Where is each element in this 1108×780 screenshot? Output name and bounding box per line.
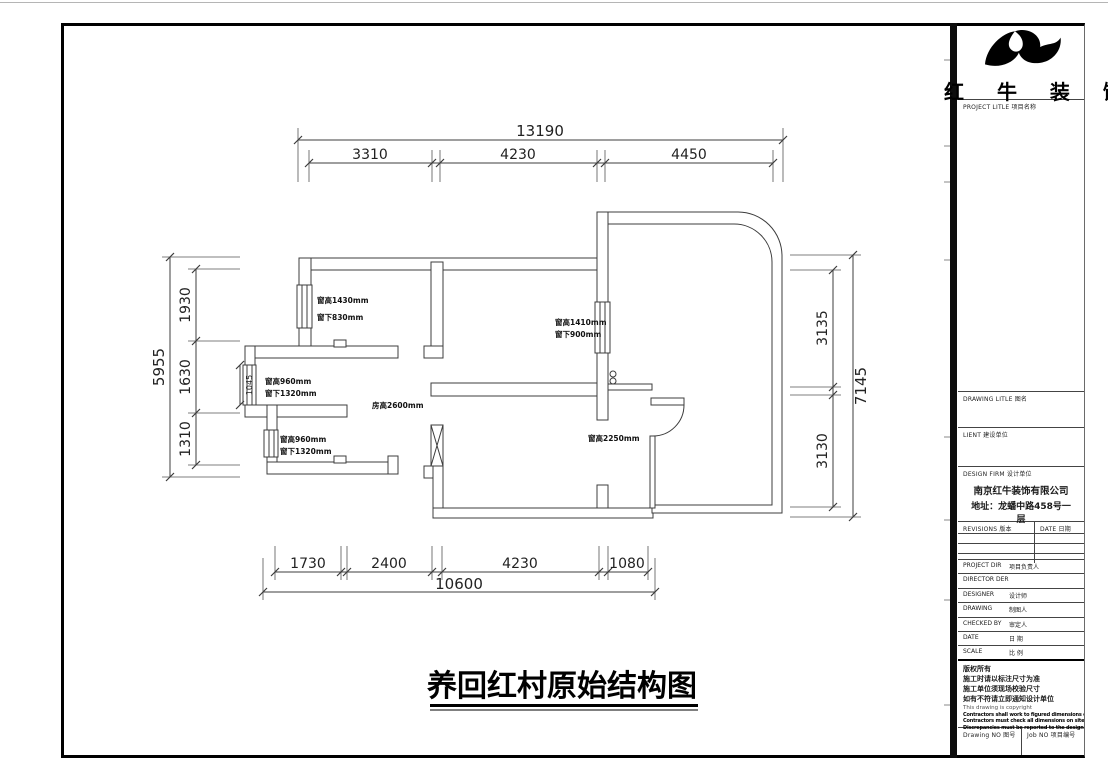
- row-label-zh: 审定人: [1009, 618, 1084, 629]
- row-label-en: DRAWING: [958, 603, 1009, 612]
- dim-bottom-s2: 2400: [371, 556, 407, 572]
- dimension-lines: [170, 140, 853, 592]
- job-no-label: Job NO 项目编号: [1022, 728, 1084, 755]
- dim-right-s2: 3130: [815, 433, 831, 469]
- ann-window-1430-sill: 窗下830mm: [317, 312, 363, 322]
- ann-window-2250: 窗高2250mm: [588, 433, 640, 443]
- copyright-en-1: This drawing is copyright: [963, 705, 1084, 712]
- plan-title-group: 养回红村原始结构图: [427, 669, 698, 710]
- row-label-zh: 设计师: [1009, 589, 1084, 600]
- floor-plan: [162, 128, 861, 600]
- ann-window-960a-h: 窗高960mm: [265, 376, 311, 386]
- wall-bottom-left: [267, 462, 398, 474]
- wall-bay-middle: [245, 405, 347, 417]
- ann-window-1410-h: 窗高1410mm: [555, 317, 607, 327]
- date-col-label: DATE 日期: [1035, 522, 1084, 533]
- project-title-label: PROJECT LITLE 项目名称: [958, 100, 1084, 111]
- project-title-section: PROJECT LITLE 项目名称: [958, 100, 1084, 392]
- door-swing-arc: [653, 405, 684, 436]
- wall-center-vertical: [431, 262, 443, 346]
- copyright-zh-3: 施工单位须现场校验尺寸: [963, 684, 1084, 694]
- dim-top-s2: 4230: [500, 147, 536, 163]
- row-label-en: DATE: [958, 632, 1009, 641]
- ann-window-1430-h: 窗高1430mm: [317, 295, 369, 305]
- dim-left-s3: 1310: [178, 421, 194, 457]
- copyright-en-3: Contractors must check all dimensions on…: [963, 718, 1084, 725]
- title-block: 红 牛 装 饰 PROJECT LITLE 项目名称 DRAWING LITLE…: [958, 23, 1084, 755]
- dimension-ticks: [166, 136, 857, 596]
- windows: [243, 285, 610, 457]
- firm-address-line1: 地址：龙蟠中路458号一: [958, 499, 1084, 512]
- drawing-no-label: Drawing NO 图号: [958, 728, 1022, 755]
- door: [651, 398, 684, 436]
- design-firm-section: DESIGN FIRM 设计单位 南京红牛装饰有限公司 地址：龙蟠中路458号一…: [958, 467, 1084, 522]
- extension-lines: [162, 128, 861, 600]
- firm-name: 南京红牛装饰有限公司: [958, 483, 1084, 497]
- drawing-number-section: Drawing NO 图号 Job NO 项目编号: [958, 728, 1084, 755]
- row-label-zh: [1009, 574, 1084, 576]
- ann-window-960b-h: 窗高960mm: [280, 434, 326, 444]
- row-checked-by: CHECKED BY 审定人: [958, 618, 1084, 632]
- wall-notch-upper: [334, 340, 346, 347]
- revisions-label: REVISIONS 版本: [958, 522, 1035, 533]
- pipe-circles: [610, 371, 616, 384]
- dim-bottom-s1: 1730: [290, 556, 326, 572]
- revisions-section: REVISIONS 版本 DATE 日期: [958, 522, 1084, 560]
- dim-bottom-s4: 1080: [609, 556, 645, 572]
- window-960-lower: [264, 430, 278, 457]
- row-project-dir: PROJECT DIR 项目负责人: [958, 560, 1084, 574]
- dim-bottom-overall: 10600: [435, 575, 483, 593]
- row-scale: SCALE 比 例: [958, 646, 1084, 660]
- wall-center-foot: [424, 346, 443, 358]
- dim-top-overall: 13190: [516, 122, 564, 140]
- dim-top-s3: 4450: [671, 147, 707, 163]
- client-section: LIENT 建设单位: [958, 428, 1084, 467]
- row-label-en: SCALE: [958, 646, 1009, 655]
- door-leaf: [651, 398, 684, 405]
- wall-lower-vertical: [433, 466, 443, 510]
- ann-room-height: 房高2600mm: [372, 400, 424, 410]
- row-label-zh: 制图人: [1009, 603, 1084, 614]
- balcony-enclosure-wall: [608, 212, 782, 513]
- wall-mid-horizontal: [431, 383, 608, 396]
- row-drawing: DRAWING 制图人: [958, 603, 1084, 617]
- row-label-zh: 比 例: [1009, 646, 1084, 657]
- row-label-en: DESIGNER: [958, 589, 1009, 598]
- row-date: DATE 日 期: [958, 632, 1084, 646]
- wall-bottom: [433, 508, 653, 518]
- design-firm-label: DESIGN FIRM 设计单位: [958, 467, 1084, 478]
- wall-door-side: [650, 436, 655, 508]
- row-label-zh: 日 期: [1009, 632, 1084, 643]
- dim-bottom-s3: 4230: [502, 556, 538, 572]
- revisions-header: REVISIONS 版本 DATE 日期: [958, 522, 1084, 534]
- ann-window-1410-sill: 窗下900mm: [555, 329, 601, 339]
- row-label-en: PROJECT DIR: [958, 560, 1009, 569]
- wall-bottom-left-foot: [388, 456, 398, 474]
- row-designer: DESIGNER 设计师: [958, 589, 1084, 603]
- dim-bay-window: 1045: [245, 375, 254, 395]
- bull-logo-icon: [976, 25, 1068, 77]
- drawing-title-section: DRAWING LITLE 图名: [958, 392, 1084, 428]
- title-block-heavy-bar: [950, 23, 957, 758]
- ann-window-960a-sill: 窗下1320mm: [265, 388, 317, 398]
- copyright-en-2: Contractors shall work to figured dimens…: [963, 712, 1084, 719]
- annotations: 窗高1430mm 窗下830mm 窗高1410mm 窗下900mm 窗高960m…: [265, 295, 640, 456]
- title-underline-thick: [430, 704, 698, 707]
- drawing-title-label: DRAWING LITLE 图名: [958, 392, 1084, 403]
- dim-left-s2: 1630: [178, 359, 194, 395]
- row-label-en: DIRECTOR DER: [958, 574, 1009, 583]
- window-1430: [297, 285, 312, 328]
- dim-left-s1: 1930: [178, 287, 194, 323]
- wall-notch-lower: [334, 456, 346, 463]
- wall-bottom-stub: [597, 485, 608, 508]
- personnel-section: PROJECT DIR 项目负责人 DIRECTOR DER DESIGNER …: [958, 560, 1084, 661]
- walls: [245, 212, 782, 518]
- row-label-en: CHECKED BY: [958, 618, 1009, 627]
- client-label: LIENT 建设单位: [958, 428, 1084, 439]
- dim-right-s1: 3135: [815, 310, 831, 346]
- revision-row: [958, 544, 1084, 554]
- dim-left-overall: 5955: [150, 348, 168, 386]
- wall-mid-upper: [245, 346, 398, 358]
- window-1410: [595, 302, 610, 353]
- wall-door-header: [608, 384, 652, 390]
- copyright-zh-1: 版权所有: [963, 664, 1084, 674]
- logo-section: 红 牛 装 饰: [958, 23, 1084, 100]
- dim-top-s1: 3310: [352, 147, 388, 163]
- dim-right-overall: 7145: [852, 367, 870, 405]
- ann-window-960b-sill: 窗下1320mm: [280, 446, 332, 456]
- row-label-zh: 项目负责人: [1009, 560, 1084, 571]
- plan-title: 养回红村原始结构图: [427, 669, 697, 704]
- copyright-zh-2: 施工时请以标注尺寸为准: [963, 674, 1084, 684]
- revision-row: [958, 534, 1084, 544]
- row-director: DIRECTOR DER: [958, 574, 1084, 588]
- cad-drawing-screen: 13190 3310 4230 4450 5955 1930 1630 1310…: [0, 0, 1108, 780]
- copyright-zh-4: 如有不符请立即通知设计单位: [963, 694, 1084, 704]
- floor-plan-canvas: 13190 3310 4230 4450 5955 1930 1630 1310…: [0, 0, 1108, 780]
- wall-top: [299, 258, 608, 270]
- copyright-section: 版权所有 施工时请以标注尺寸为准 施工单位须现场校验尺寸 如有不符请立即通知设计…: [958, 661, 1084, 728]
